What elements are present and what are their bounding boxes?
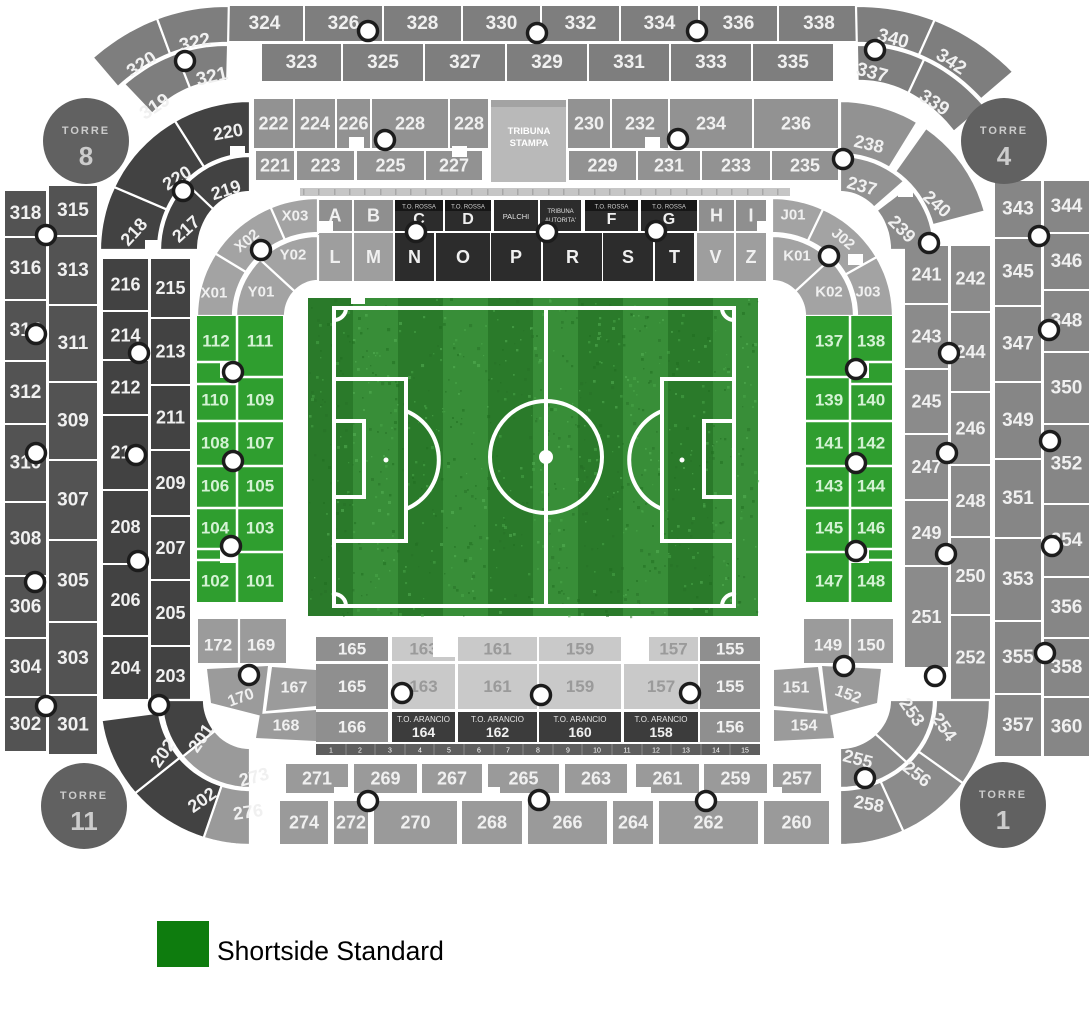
svg-text:233: 233 <box>721 156 751 176</box>
svg-text:T.O. ARANCIO: T.O. ARANCIO <box>635 715 688 724</box>
svg-text:TRIBUNA: TRIBUNA <box>508 126 551 137</box>
svg-text:227: 227 <box>439 156 469 176</box>
svg-text:O: O <box>456 247 470 267</box>
svg-text:12: 12 <box>652 748 660 755</box>
svg-text:11: 11 <box>623 748 630 755</box>
svg-text:R: R <box>566 247 579 267</box>
svg-text:213: 213 <box>155 342 185 362</box>
svg-text:K01: K01 <box>783 248 811 265</box>
svg-text:T.O. ARANCIO: T.O. ARANCIO <box>471 715 524 724</box>
svg-text:N: N <box>408 247 421 267</box>
svg-text:274: 274 <box>289 813 319 833</box>
svg-text:305: 305 <box>57 571 89 592</box>
svg-text:228: 228 <box>395 114 425 134</box>
svg-text:353: 353 <box>1002 569 1034 590</box>
svg-text:346: 346 <box>1051 251 1083 272</box>
svg-text:8: 8 <box>79 141 93 171</box>
svg-text:108: 108 <box>201 434 229 453</box>
svg-text:338: 338 <box>803 13 835 34</box>
svg-text:TORRE: TORRE <box>979 789 1027 801</box>
svg-text:207: 207 <box>155 538 185 558</box>
svg-text:15: 15 <box>741 748 749 755</box>
svg-text:229: 229 <box>587 156 617 176</box>
svg-text:357: 357 <box>1002 715 1034 736</box>
svg-text:350: 350 <box>1051 378 1083 399</box>
svg-text:163: 163 <box>409 677 437 696</box>
svg-text:252: 252 <box>955 648 985 668</box>
svg-text:203: 203 <box>155 666 185 686</box>
svg-text:14: 14 <box>712 748 720 755</box>
svg-text:315: 315 <box>57 200 89 221</box>
svg-text:147: 147 <box>815 572 843 591</box>
svg-text:263: 263 <box>581 769 611 789</box>
svg-text:328: 328 <box>407 13 439 34</box>
svg-text:306: 306 <box>10 597 42 618</box>
svg-text:T.O. ARANCIO: T.O. ARANCIO <box>397 715 450 724</box>
svg-text:156: 156 <box>716 718 744 737</box>
svg-text:266: 266 <box>552 813 582 833</box>
svg-text:B: B <box>367 206 380 226</box>
svg-text:334: 334 <box>644 13 676 34</box>
svg-text:158: 158 <box>649 724 673 740</box>
svg-text:160: 160 <box>568 724 592 740</box>
svg-text:309: 309 <box>57 411 89 432</box>
svg-text:204: 204 <box>110 658 140 678</box>
svg-text:T.O. ARANCIO: T.O. ARANCIO <box>554 715 607 724</box>
svg-text:234: 234 <box>696 114 726 134</box>
svg-text:169: 169 <box>247 636 275 655</box>
svg-text:330: 330 <box>486 13 518 34</box>
svg-text:225: 225 <box>375 156 405 176</box>
svg-text:212: 212 <box>110 378 140 398</box>
svg-text:137: 137 <box>815 332 843 351</box>
svg-text:318: 318 <box>10 203 42 224</box>
svg-text:245: 245 <box>911 392 941 412</box>
svg-text:10: 10 <box>593 748 601 755</box>
svg-text:6: 6 <box>477 748 481 755</box>
svg-text:248: 248 <box>955 491 985 511</box>
svg-text:269: 269 <box>370 769 400 789</box>
svg-text:323: 323 <box>286 52 318 73</box>
svg-text:311: 311 <box>58 333 89 354</box>
svg-text:267: 267 <box>437 769 467 789</box>
svg-text:Shortside Standard: Shortside Standard <box>217 936 444 966</box>
svg-text:142: 142 <box>857 434 885 453</box>
svg-text:112: 112 <box>202 332 229 351</box>
svg-text:162: 162 <box>486 724 510 740</box>
svg-text:276: 276 <box>232 800 265 824</box>
svg-text:161: 161 <box>483 640 511 659</box>
svg-text:105: 105 <box>246 477 274 496</box>
svg-text:352: 352 <box>1051 454 1083 475</box>
svg-text:249: 249 <box>911 523 941 543</box>
svg-text:168: 168 <box>273 718 300 735</box>
svg-text:264: 264 <box>618 813 648 833</box>
svg-text:262: 262 <box>693 813 723 833</box>
svg-text:P: P <box>510 247 522 267</box>
svg-text:270: 270 <box>400 813 430 833</box>
svg-text:241: 241 <box>911 265 941 285</box>
svg-text:272: 272 <box>336 813 366 833</box>
svg-text:J03: J03 <box>855 284 880 301</box>
svg-text:335: 335 <box>777 52 809 73</box>
svg-text:143: 143 <box>815 477 843 496</box>
svg-text:242: 242 <box>955 269 985 289</box>
svg-text:159: 159 <box>566 677 594 696</box>
svg-text:K02: K02 <box>815 284 843 301</box>
svg-text:223: 223 <box>310 156 340 176</box>
svg-text:265: 265 <box>508 769 538 789</box>
svg-text:360: 360 <box>1051 717 1083 738</box>
svg-text:232: 232 <box>625 114 655 134</box>
svg-text:144: 144 <box>857 477 886 496</box>
svg-text:230: 230 <box>574 114 604 134</box>
svg-text:159: 159 <box>566 640 594 659</box>
svg-text:2: 2 <box>358 748 362 755</box>
svg-text:111: 111 <box>247 332 274 351</box>
svg-text:215: 215 <box>155 278 185 298</box>
svg-text:145: 145 <box>815 519 843 538</box>
svg-text:X01: X01 <box>201 285 228 302</box>
svg-text:4: 4 <box>997 141 1012 171</box>
svg-text:M: M <box>366 247 381 267</box>
svg-text:355: 355 <box>1002 647 1034 668</box>
svg-text:231: 231 <box>654 156 684 176</box>
svg-text:167: 167 <box>281 680 308 697</box>
svg-text:208: 208 <box>110 517 140 537</box>
svg-text:268: 268 <box>477 813 507 833</box>
svg-text:Y02: Y02 <box>280 247 307 264</box>
svg-text:T.O. ROSSA: T.O. ROSSA <box>402 205 436 211</box>
svg-text:T: T <box>669 247 680 267</box>
svg-text:STAMPA: STAMPA <box>510 138 549 149</box>
svg-text:246: 246 <box>955 419 985 439</box>
svg-text:271: 271 <box>302 769 332 789</box>
svg-text:247: 247 <box>911 457 941 477</box>
svg-text:TORRE: TORRE <box>60 790 108 802</box>
svg-text:329: 329 <box>531 52 563 73</box>
svg-text:146: 146 <box>857 519 885 538</box>
svg-text:V: V <box>709 247 721 267</box>
svg-text:326: 326 <box>328 13 360 34</box>
svg-text:T.O. ROSSA: T.O. ROSSA <box>652 205 686 211</box>
svg-text:155: 155 <box>716 677 744 696</box>
svg-text:PALCHI: PALCHI <box>503 212 530 221</box>
svg-text:261: 261 <box>652 769 682 789</box>
svg-text:206: 206 <box>110 590 140 610</box>
svg-text:313: 313 <box>57 260 89 281</box>
svg-text:307: 307 <box>57 490 89 511</box>
svg-text:324: 324 <box>249 13 281 34</box>
svg-text:151: 151 <box>783 680 810 697</box>
svg-text:140: 140 <box>857 391 885 410</box>
svg-text:165: 165 <box>338 640 366 659</box>
svg-text:Y01: Y01 <box>248 284 275 301</box>
svg-text:304: 304 <box>10 657 42 678</box>
svg-text:157: 157 <box>659 640 687 659</box>
svg-text:236: 236 <box>781 114 811 134</box>
svg-text:107: 107 <box>246 434 274 453</box>
svg-text:109: 109 <box>246 391 274 410</box>
svg-text:9: 9 <box>566 748 570 755</box>
svg-text:X03: X03 <box>282 208 309 225</box>
svg-text:222: 222 <box>258 114 288 134</box>
svg-text:332: 332 <box>565 13 597 34</box>
svg-text:165: 165 <box>338 677 366 696</box>
svg-text:209: 209 <box>155 473 185 493</box>
svg-text:Z: Z <box>746 247 757 267</box>
svg-text:161: 161 <box>483 677 511 696</box>
svg-text:345: 345 <box>1002 262 1034 283</box>
svg-text:312: 312 <box>10 382 42 403</box>
svg-text:TRIBUNA: TRIBUNA <box>547 209 573 215</box>
svg-text:106: 106 <box>201 477 229 496</box>
svg-text:301: 301 <box>57 715 89 736</box>
svg-text:154: 154 <box>791 718 818 735</box>
svg-text:316: 316 <box>10 258 42 279</box>
svg-text:103: 103 <box>246 519 274 538</box>
svg-text:D: D <box>462 211 474 228</box>
svg-text:1: 1 <box>329 748 333 755</box>
svg-text:H: H <box>710 206 723 226</box>
svg-text:110: 110 <box>201 391 228 410</box>
svg-text:172: 172 <box>204 636 232 655</box>
svg-text:139: 139 <box>815 391 843 410</box>
svg-text:226: 226 <box>338 114 368 134</box>
svg-text:303: 303 <box>57 648 89 669</box>
svg-text:155: 155 <box>716 640 744 659</box>
svg-text:148: 148 <box>857 572 885 591</box>
svg-text:J01: J01 <box>780 207 805 224</box>
svg-text:347: 347 <box>1002 334 1034 355</box>
svg-text:358: 358 <box>1051 657 1083 678</box>
svg-text:1: 1 <box>996 805 1010 835</box>
svg-text:351: 351 <box>1002 488 1034 509</box>
svg-text:TORRE: TORRE <box>980 125 1028 137</box>
svg-text:13: 13 <box>682 748 690 755</box>
svg-text:F: F <box>607 211 617 228</box>
svg-text:102: 102 <box>201 572 229 591</box>
svg-text:333: 333 <box>695 52 727 73</box>
svg-text:141: 141 <box>815 434 843 453</box>
svg-text:205: 205 <box>155 603 185 623</box>
svg-text:251: 251 <box>911 607 941 627</box>
svg-text:221: 221 <box>260 156 290 176</box>
svg-text:216: 216 <box>110 275 140 295</box>
svg-text:T.O. ROSSA: T.O. ROSSA <box>451 205 485 211</box>
svg-text:211: 211 <box>156 408 185 428</box>
svg-text:S: S <box>622 247 634 267</box>
svg-text:325: 325 <box>367 52 399 73</box>
svg-text:259: 259 <box>720 769 750 789</box>
svg-text:327: 327 <box>449 52 481 73</box>
svg-text:I: I <box>748 206 753 226</box>
svg-text:166: 166 <box>338 718 366 737</box>
svg-text:101: 101 <box>246 572 274 591</box>
svg-text:164: 164 <box>412 724 436 740</box>
svg-text:104: 104 <box>201 519 230 538</box>
svg-text:149: 149 <box>814 636 842 655</box>
svg-text:228: 228 <box>454 114 484 134</box>
svg-text:250: 250 <box>955 566 985 586</box>
svg-text:4: 4 <box>418 748 422 755</box>
svg-text:331: 331 <box>613 52 645 73</box>
svg-text:302: 302 <box>10 714 42 735</box>
svg-text:344: 344 <box>1051 196 1083 217</box>
svg-text:7: 7 <box>506 748 510 755</box>
svg-text:11: 11 <box>70 806 98 836</box>
svg-text:257: 257 <box>782 769 812 789</box>
svg-text:150: 150 <box>857 636 885 655</box>
svg-text:235: 235 <box>790 156 820 176</box>
svg-text:260: 260 <box>781 813 811 833</box>
svg-text:356: 356 <box>1051 597 1083 618</box>
svg-text:L: L <box>330 247 341 267</box>
svg-text:5: 5 <box>447 748 451 755</box>
svg-text:3: 3 <box>388 748 392 755</box>
svg-text:224: 224 <box>300 114 330 134</box>
svg-text:336: 336 <box>723 13 755 34</box>
svg-text:343: 343 <box>1002 199 1034 220</box>
svg-text:TORRE: TORRE <box>62 125 110 137</box>
svg-text:8: 8 <box>536 748 540 755</box>
svg-text:349: 349 <box>1002 410 1034 431</box>
svg-text:138: 138 <box>857 332 885 351</box>
svg-text:243: 243 <box>911 327 941 347</box>
svg-text:157: 157 <box>647 677 675 696</box>
svg-text:308: 308 <box>10 529 42 550</box>
svg-text:T.O. ROSSA: T.O. ROSSA <box>595 205 629 211</box>
